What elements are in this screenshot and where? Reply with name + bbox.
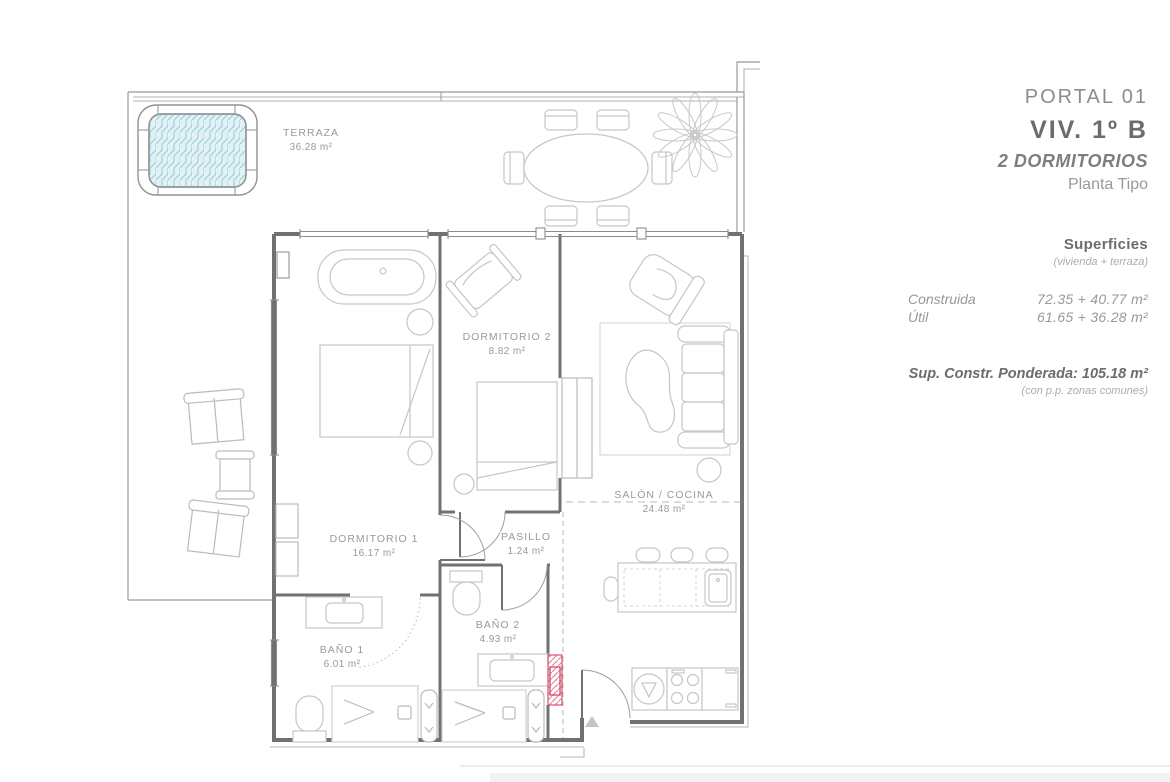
unit-label: VIV. 1º B (998, 116, 1148, 145)
room-area-bano2: 4.93 m² (480, 634, 517, 645)
bed-dorm2 (477, 382, 557, 490)
sofa (678, 326, 738, 448)
room-area-bano1: 6.01 m² (324, 659, 361, 670)
surfaces-subheading: (vivienda + terraza) (908, 256, 1148, 268)
toilet (293, 696, 326, 742)
weighted-surface-note: (con p.p. zonas comunes) (908, 385, 1148, 397)
page-edge-lines (460, 766, 1170, 782)
wardrobe (276, 504, 298, 538)
room-label-bano1: BAÑO 1 (320, 643, 365, 656)
room-label-salon: SALÓN / COCINA (614, 488, 713, 501)
terrace-lounge-chairs (184, 388, 254, 557)
room-area-dorm1: 16.17 m² (353, 548, 396, 559)
surface-row-util: Útil 61.65 + 36.28 m² (908, 308, 1148, 326)
entrance-door (582, 670, 630, 718)
counter-cabinet (702, 668, 738, 710)
room-area-dorm2: 8.82 m² (489, 346, 526, 357)
floorplan-page: TERRAZA 36.28 m² DORMITORIO 2 8.82 m² SA… (0, 0, 1170, 782)
bath2-door (502, 565, 547, 610)
bathtub (318, 250, 436, 304)
surfaces-heading: Superficies (908, 236, 1148, 253)
surface-row-value: 61.65 + 36.28 m² (1037, 308, 1148, 326)
room-label-terraza: TERRAZA (283, 127, 339, 139)
stool (604, 577, 618, 601)
bedrooms-label: 2 DORMITORIOS (998, 151, 1148, 172)
wardrobe-salon (562, 378, 592, 478)
washing-machine (632, 668, 667, 710)
surface-row-label: Construida (908, 290, 976, 308)
room-label-bano2: BAÑO 2 (476, 618, 521, 631)
bedside-table (407, 309, 433, 335)
slim-cabinet (528, 690, 544, 742)
hot-tub (138, 105, 257, 195)
bed-dorm1 (320, 345, 433, 437)
coffee-table (626, 350, 675, 432)
vanity-sink (478, 654, 548, 686)
salon-furniture (562, 247, 738, 710)
bedside-table (454, 474, 474, 494)
bedside-table (408, 441, 432, 465)
pilaster (277, 252, 289, 278)
weighted-surface: Sup. Constr. Ponderada: 105.18 m² (908, 366, 1148, 382)
shower (442, 690, 526, 742)
wardrobe (276, 542, 298, 576)
surface-row-value: 72.35 + 40.77 m² (1037, 290, 1148, 308)
surface-row-label: Útil (908, 308, 928, 326)
dining-table (504, 110, 672, 226)
room-area-terraza: 36.28 m² (290, 142, 333, 153)
room-label-dorm1: DORMITORIO 1 (330, 533, 419, 545)
shower (332, 686, 418, 742)
armchair (623, 247, 706, 327)
dorm2-door (460, 512, 505, 557)
stool (636, 548, 660, 562)
shaft-highlight (548, 655, 562, 705)
room-area-salon: 24.48 m² (643, 504, 686, 515)
bath1-fixtures (293, 597, 437, 742)
portal-label: PORTAL 01 (998, 86, 1148, 109)
stool (706, 548, 728, 562)
room-label-dorm2: DORMITORIO 2 (463, 331, 552, 343)
entrance-arrow-icon (585, 716, 599, 727)
kitchen-island (604, 548, 736, 612)
dorm2-furniture (445, 243, 557, 494)
kitchen-appliances (632, 668, 738, 710)
room-area-pasillo: 1.24 m² (508, 546, 545, 557)
desk-chair (445, 243, 522, 318)
vanity-sink (306, 597, 382, 628)
side-table (697, 458, 721, 482)
dorm1-furniture (276, 250, 436, 576)
kitchen-sink (705, 570, 731, 606)
toilet (450, 571, 482, 615)
surfaces-block: Superficies (vivienda + terraza) Constru… (908, 236, 1148, 397)
stool (671, 548, 693, 562)
title-block: PORTAL 01 VIV. 1º B 2 DORMITORIOS Planta… (998, 86, 1148, 194)
hob (667, 668, 702, 710)
slim-cabinet (421, 690, 437, 742)
surface-row-construida: Construida 72.35 + 40.77 m² (908, 290, 1148, 308)
plan-type-label: Planta Tipo (998, 176, 1148, 194)
room-label-pasillo: PASILLO (501, 531, 551, 543)
